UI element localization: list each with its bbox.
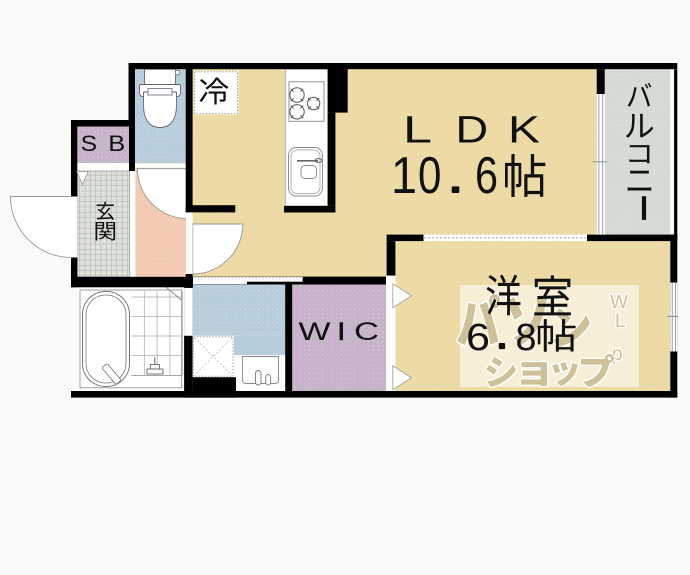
svg-text:S: S	[81, 131, 98, 156]
svg-text:W: W	[299, 318, 332, 346]
svg-text:L: L	[403, 110, 432, 152]
svg-text:1: 1	[391, 147, 417, 205]
svg-text:6: 6	[466, 317, 490, 359]
svg-text:6: 6	[475, 147, 498, 205]
svg-text:W: W	[610, 292, 628, 313]
svg-text:K: K	[508, 110, 540, 152]
svg-text:8: 8	[516, 317, 537, 359]
svg-text:B: B	[108, 131, 125, 156]
svg-text:D: D	[456, 110, 489, 152]
svg-text:C: C	[354, 318, 379, 346]
svg-text:L: L	[615, 311, 626, 332]
svg-text:0: 0	[418, 147, 441, 205]
